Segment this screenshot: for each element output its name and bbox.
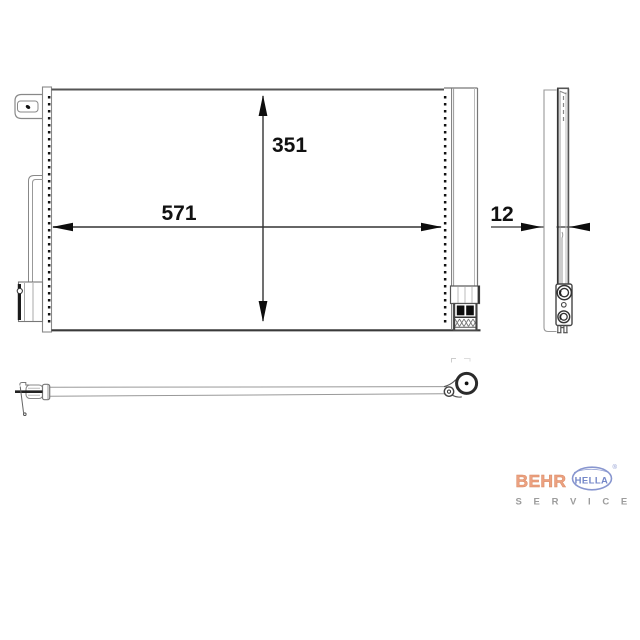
svg-text:571: 571 xyxy=(161,202,196,225)
svg-text:SERVICE: SERVICE xyxy=(516,497,639,508)
svg-text:12: 12 xyxy=(490,203,513,226)
svg-text:351: 351 xyxy=(272,134,307,157)
svg-text:BEHR: BEHR xyxy=(516,471,567,491)
svg-text:®: ® xyxy=(613,464,618,471)
svg-text:HELLA: HELLA xyxy=(575,476,609,487)
